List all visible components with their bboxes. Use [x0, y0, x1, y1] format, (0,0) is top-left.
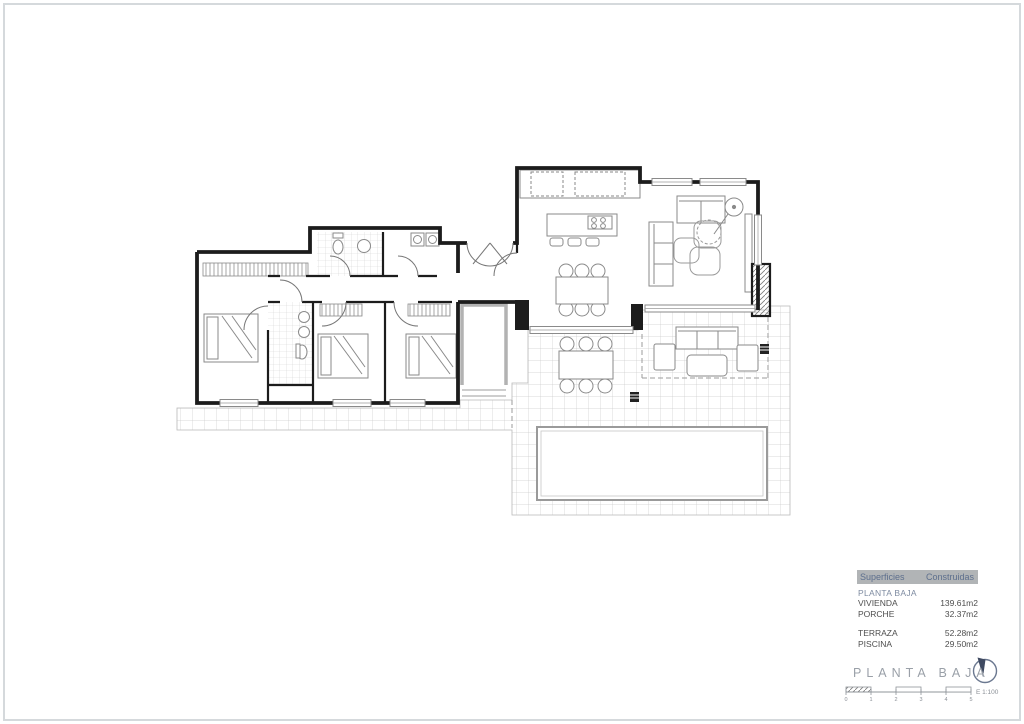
bed-icon: [318, 334, 368, 378]
table-row: PORCHE 32.37m2: [858, 610, 978, 620]
sofa-icon: [649, 196, 725, 286]
page-title: PLANTA BAJA: [853, 666, 990, 680]
area-label: PISCINA: [858, 640, 892, 650]
coffee-table-icon: [674, 220, 721, 275]
scale-tick-label: 3: [919, 697, 922, 703]
scale-tick-label: 1: [869, 697, 872, 703]
kitchen-island-icon: [547, 214, 617, 246]
scale-bar: 0 1 2 3 4 5 E 1:100: [844, 687, 998, 703]
areas-table-header-col1: Superficies: [860, 572, 905, 582]
areas-table-header: Superficies Construidas: [857, 570, 978, 584]
areas-table-section-label: PLANTA BAJA: [858, 588, 978, 598]
dining-table-icon: [556, 264, 608, 316]
table-row: PISCINA 29.50m2: [858, 640, 978, 650]
bed-icon: [406, 334, 456, 378]
kitchen-counter-icon: [520, 170, 640, 198]
outdoor-dining-table-icon: [559, 337, 613, 393]
area-label: VIVIENDA: [858, 599, 898, 609]
scale-tick-label: 4: [944, 697, 947, 703]
areas-table-header-col2: Construidas: [926, 572, 974, 582]
bed-icon: [204, 314, 258, 362]
washer-dryer-icon: [411, 233, 439, 246]
table-row: VIVIENDA 139.61m2: [858, 599, 978, 609]
area-label: PORCHE: [858, 610, 894, 620]
area-value: 29.50m2: [945, 640, 978, 650]
area-value: 52.28m2: [945, 629, 978, 639]
scale-tick-label: 2: [894, 697, 897, 703]
scale-tick-label: 0: [844, 697, 847, 703]
areas-table: Superficies Construidas PLANTA BAJA VIVI…: [857, 570, 978, 649]
wall-pier: [515, 300, 529, 330]
porch: [462, 305, 506, 396]
scale-label: E 1:100: [976, 689, 999, 696]
area-value: 139.61m2: [940, 599, 978, 609]
area-label: TERRAZA: [858, 629, 898, 639]
pool: [537, 427, 767, 500]
table-row: TERRAZA 52.28m2: [858, 629, 978, 639]
scale-tick-label: 5: [969, 697, 972, 703]
area-value: 32.37m2: [945, 610, 978, 620]
